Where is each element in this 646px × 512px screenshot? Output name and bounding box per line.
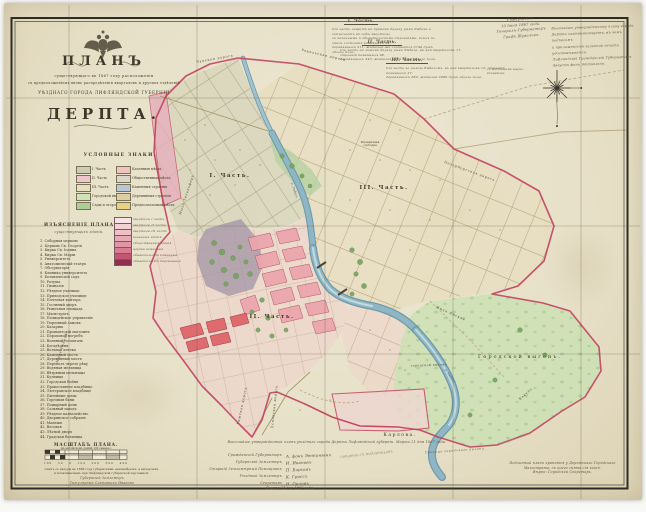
title-plan: ПЛАНЪ	[20, 54, 188, 69]
bottom-right-note: Подлинный планъ хранится у Дерптскаго Го…	[500, 461, 625, 475]
signature-sign: И. Ивановъ	[286, 460, 312, 466]
scale-note: Снятъ съ натуры въ 1866 году губернскимъ…	[44, 467, 159, 475]
label-part3: III. Часть.	[352, 185, 416, 191]
legend-swatch	[116, 184, 131, 192]
legend-header: УСЛОВНЫЕ ЗНАКИ.	[65, 153, 175, 158]
signature-date: Января 14 дня 1867 года.	[230, 486, 350, 490]
explanation-swatch-label: обывательскія деревянныя	[133, 259, 181, 263]
legend-label: Каменныя строенія	[132, 185, 167, 189]
legend-swatch	[76, 184, 91, 192]
legend-swatch	[116, 175, 131, 183]
part1-note-header: I. Часть.	[344, 19, 378, 25]
explanation-swatch-label: общественныя зданія	[133, 241, 172, 245]
signature-row: Уѣздный Землемѣръ К. Гроссъ	[190, 474, 340, 479]
corner-note-right: Высочайше утвержденному плану города Дер…	[551, 23, 636, 69]
signature-role: Гражданскій Губернаторъ	[190, 453, 282, 458]
part2-note-header: II. Часть.	[362, 40, 402, 46]
map-photo: { "title_block": { "plan": "ПЛАНЪ", "lin…	[0, 0, 646, 512]
legend-label: Казенныя мѣста	[132, 167, 161, 171]
title-line2: съ предположеніемъ вновь распредѣленія к…	[10, 81, 198, 85]
explanation-swatch-label: кварталы II части	[133, 223, 166, 227]
explanation-swatch-label: кварталы I части	[133, 217, 165, 221]
legend-label: II. Часть	[92, 176, 107, 180]
scale-signature: Губернскій Землемѣръ Титулярный Совѣтник…	[60, 476, 144, 485]
title-line3: УѢЗДНАГО ГОРОДА ЛИФЛЯНДСКОЙ ГУБЕРНІИ	[14, 90, 194, 95]
label-part1: I. Часть.	[200, 173, 260, 179]
legend-swatch	[116, 193, 131, 201]
signature-row: Губернскій Землемѣръ И. Ивановъ	[190, 460, 340, 465]
legend-label: I. Часть	[92, 167, 106, 171]
signature-sign: П. Барсовъ	[286, 467, 311, 473]
part3-note-header: III. Часть.	[386, 58, 428, 64]
signature-role: Уѣздный Землемѣръ	[190, 474, 282, 479]
scale-subtitle: (въ англійскомъ дюймѣ 100 саженъ.)	[46, 447, 126, 450]
explanation-swatch	[114, 259, 132, 266]
explanation-swatch-label: казенныя зданія	[133, 235, 162, 239]
label-karlova: Карлова.	[368, 433, 432, 438]
explanation-swatch-label: кварталы III части	[133, 229, 167, 233]
scale-bar	[45, 450, 127, 459]
label-sloboda: Мельничная слободка	[345, 141, 395, 148]
title-line1: существующаго въ 1867 году расположенія	[14, 74, 194, 78]
legend-swatch	[76, 166, 91, 174]
label-pasture: Городской выгонъ.	[465, 354, 575, 360]
explanation-swatch-label: обывательскія каменныя	[133, 253, 177, 257]
signature-sign: К. Гроссъ	[286, 474, 308, 480]
legend-label: III. Часть	[92, 185, 108, 189]
legend-swatch	[76, 175, 91, 183]
scale-numbers: 100 50 0 100 200 300 400	[40, 461, 132, 465]
label-part2: II. Часть.	[242, 314, 302, 320]
signature-row: Гражданскій Губернаторъ А. фонъ Эттинген…	[190, 453, 340, 458]
explanation-header: ИЗЪЯСНЕНІЕ ПЛАНА	[38, 223, 120, 228]
signature-sign: А. фонъ Эттингенъ	[286, 452, 332, 459]
corner-note-small: съ подлиннымъ вѣрно: Секретарь	[487, 68, 533, 75]
title-city: ДЕРПТА.	[20, 105, 188, 123]
legend-label: Общественныя мѣста	[132, 176, 171, 180]
signature-role: Старшій Землемѣрный Помощникъ	[190, 467, 282, 472]
explanation-swatch-label: церкви каменныя	[133, 247, 163, 251]
corner-note-left: Утверждаю. 10 Іюня 1867 года. Генералъ-Г…	[491, 15, 550, 41]
legend-label: Предполагаемыя мѣста	[132, 203, 175, 207]
signature-role: Губернскій Землемѣръ	[190, 460, 282, 465]
signature-row: Старшій Землемѣрный Помощникъ П. Барсовъ	[190, 467, 340, 472]
karlova-estate	[332, 389, 429, 431]
explanation-items: 1. Соборная церковь 2. Церковь Св. Георг…	[40, 239, 118, 439]
legend-swatch	[116, 202, 131, 210]
legend-swatch	[76, 193, 91, 201]
legend-swatch	[76, 202, 91, 210]
confirmation-line: Высочайше утвержденный планъ уѣзднаго го…	[182, 440, 492, 444]
legend-swatch	[116, 166, 131, 174]
legend-label: Деревянныя строенія	[132, 194, 171, 198]
explanation-subheader: существующихъ зданій.	[38, 230, 120, 234]
